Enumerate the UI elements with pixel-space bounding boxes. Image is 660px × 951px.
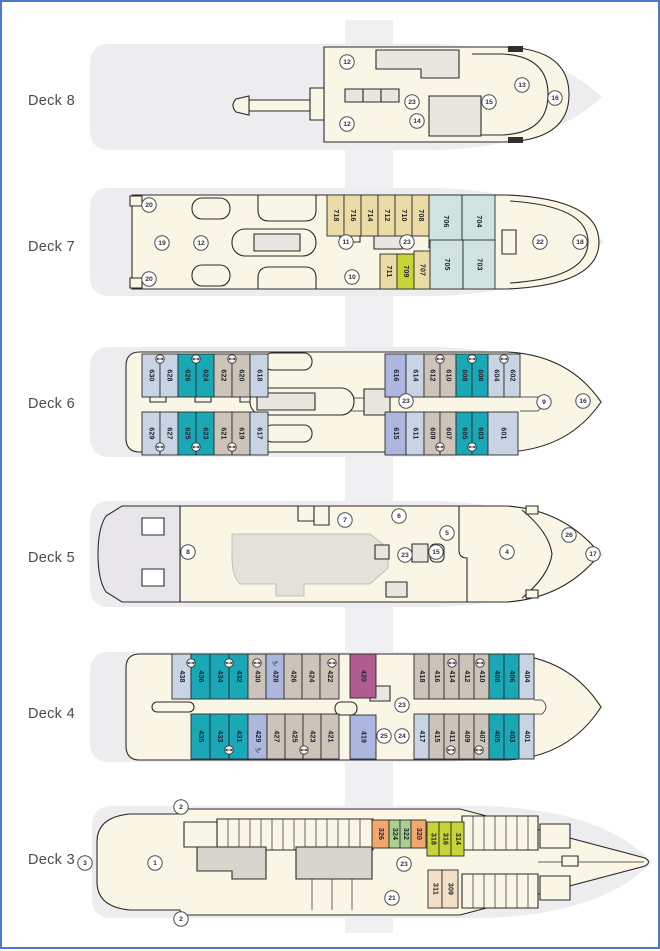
funnel-casing (192, 198, 230, 219)
deckhouse-room (264, 353, 312, 370)
cabin-number: 404 (523, 670, 530, 682)
cabin-number: 427 (273, 730, 280, 742)
connecting-cabins-icon (468, 355, 476, 363)
legend-marker-16: 16 (548, 91, 562, 105)
legend-marker-14: 14 (410, 114, 424, 128)
connecting-cabins-icon (448, 659, 456, 667)
legend-marker-number: 23 (408, 99, 416, 106)
deck3-plan: 32632432232031831631431130932123212 (78, 800, 652, 926)
connecting-cabins-icon (475, 746, 483, 754)
bow-pedestal (502, 230, 516, 254)
cabin-number: 620 (238, 369, 245, 381)
connecting-cabins-icon (436, 355, 444, 363)
legend-marker-number: 4 (505, 549, 509, 556)
legend-marker-number: 22 (536, 239, 544, 246)
cabin-number: 431 (235, 730, 242, 742)
cabin-number: 311 (432, 883, 439, 895)
legend-marker-number: 21 (388, 895, 396, 902)
locker (381, 89, 399, 102)
legend-marker-6: 6 (392, 509, 406, 523)
connecting-cabins-icon (300, 746, 308, 754)
connecting-cabins-icon (228, 355, 236, 363)
deck8-plan: 12122314151316 (90, 44, 602, 150)
lobby-desk (335, 702, 357, 715)
deck4-plan: 4384364344324304284264244224204184164144… (90, 652, 604, 762)
cabin-number: 425 (291, 730, 298, 742)
connecting-cabins-icon (192, 443, 200, 451)
cabin-number: 320 (415, 828, 422, 840)
cabin-number: 623 (202, 427, 209, 439)
legend-marker-number: 23 (401, 552, 409, 559)
legend-marker-number: 2 (179, 916, 183, 923)
legend-marker-19: 19 (155, 236, 169, 250)
connecting-cabins-icon (436, 443, 444, 451)
legend-marker-number: 16 (579, 398, 587, 405)
deck5-plan: 8765231542617 (90, 501, 604, 607)
legend-marker-number: 23 (398, 702, 406, 709)
cabin-number: 605 (461, 427, 468, 439)
legend-marker-2: 2 (174, 912, 188, 926)
legend-marker-number: 25 (380, 733, 388, 740)
cabin-number: 429 (254, 730, 261, 742)
tender-recess (258, 195, 316, 221)
funnel-casing-band (345, 20, 393, 933)
deckhouse-room (264, 425, 312, 442)
cabin-number: 403 (508, 730, 515, 742)
cabin-number: 432 (235, 670, 242, 682)
cabin-number: 619 (238, 427, 245, 439)
legend-marker-26: 26 (562, 528, 576, 542)
cabin-number: 625 (184, 427, 191, 439)
cabin-number: 718 (332, 209, 339, 221)
legend-marker-number: 7 (343, 517, 347, 524)
cabin-number: 708 (417, 209, 424, 221)
legend-marker-12: 12 (194, 236, 208, 250)
stern-platform (98, 506, 180, 602)
connecting-cabins-icon (225, 746, 233, 754)
legend-marker-23: 23 (398, 548, 412, 562)
service-room (314, 506, 329, 525)
crew-room (184, 822, 217, 847)
cabin-number: 714 (366, 209, 373, 221)
cabin-number: 435 (197, 730, 204, 742)
stair-core (412, 544, 428, 562)
cabin-number: 705 (443, 258, 450, 270)
legend-marker-number: 20 (145, 276, 153, 283)
cabin-number: 703 (476, 258, 483, 270)
legend-marker-12: 12 (340, 55, 354, 69)
cabin-number: 412 (463, 670, 470, 682)
cabin-number: 414 (448, 670, 455, 682)
connecting-cabins-icon (500, 355, 508, 363)
hull-marking (508, 137, 523, 143)
cabin-number: 417 (418, 730, 425, 742)
legend-marker-number: 10 (348, 274, 356, 281)
legend-marker-7: 7 (338, 513, 352, 527)
mast-tip (233, 96, 249, 115)
legend-marker-15: 15 (482, 95, 496, 109)
legend-marker-18: 18 (573, 235, 587, 249)
deck7-plan: 7187167147127107087067047117097077057032… (90, 188, 604, 296)
hull-marking (508, 46, 523, 52)
legend-marker-11: 11 (339, 235, 353, 249)
legend-marker-22: 22 (533, 235, 547, 249)
connecting-cabins-icon (468, 443, 476, 451)
legend-marker-23: 23 (405, 95, 419, 109)
legend-marker-number: 15 (485, 99, 493, 106)
legend-marker-15: 15 (429, 545, 443, 559)
cabin-number: 326 (377, 828, 384, 840)
cabin-number: 603 (477, 427, 484, 439)
cabin-number: 606 (477, 369, 484, 381)
cabin-number: 314 (454, 833, 461, 845)
cabin-number: 424 (308, 670, 315, 682)
cabin-number: 438 (178, 670, 185, 682)
bow-room (540, 876, 570, 900)
cabin-number: 627 (166, 427, 173, 439)
legend-marker-4: 4 (500, 545, 514, 559)
legend-marker-20: 20 (142, 272, 156, 286)
deckhouse-room (429, 96, 481, 136)
legend-marker-number: 16 (551, 95, 559, 102)
cabin-number: 630 (148, 369, 155, 381)
connecting-cabins-icon (476, 659, 484, 667)
cabin-number: 423 (309, 730, 316, 742)
legend-marker-number: 9 (542, 399, 546, 406)
legend-marker-23: 23 (397, 857, 411, 871)
cabin-number: 420 (360, 670, 367, 682)
cabin-number: 416 (433, 670, 440, 682)
legend-marker-number: 23 (400, 861, 408, 868)
legend-marker-9: 9 (537, 395, 551, 409)
cabin-number: 405 (493, 730, 500, 742)
legend-marker-number: 12 (197, 240, 205, 247)
legend-marker-8: 8 (181, 545, 195, 559)
crew-cabin-band (462, 816, 538, 850)
legend-marker-number: 24 (398, 733, 406, 740)
mast-arm (249, 100, 310, 111)
funnel-casing (192, 265, 230, 286)
deck-3-label: Deck 3 (28, 852, 75, 868)
cabin-number: 419 (360, 731, 367, 743)
cabin-number: 407 (478, 730, 485, 742)
legend-marker-number: 12 (343, 121, 351, 128)
cabin-number: 624 (202, 369, 209, 381)
legend-marker-number: 3 (83, 860, 87, 867)
cabin-number: 621 (220, 427, 227, 439)
cabin-number: 410 (478, 670, 485, 682)
deck-6-label: Deck 6 (28, 396, 75, 412)
bow-room (540, 824, 570, 848)
service-room (375, 545, 389, 559)
deck-5-label: Deck 5 (28, 550, 75, 566)
connecting-cabins-icon (187, 659, 195, 667)
legend-marker-number: 8 (186, 549, 190, 556)
deck-4-label: Deck 4 (28, 706, 75, 722)
stern-notch (142, 518, 164, 535)
cabin-number: 710 (400, 209, 407, 221)
cabin-number: 434 (216, 670, 223, 682)
legend-marker-number: 1 (153, 860, 157, 867)
connecting-cabins-icon (192, 355, 200, 363)
cabin-number: 709 (402, 265, 409, 277)
cabin-number: 704 (475, 215, 482, 227)
corridor-stub (152, 702, 194, 712)
legend-marker-number: 11 (342, 239, 349, 246)
legend-marker-10: 10 (345, 270, 359, 284)
deck-8-label: Deck 8 (28, 93, 75, 109)
legend-marker-number: 18 (576, 239, 584, 246)
cabin-number: 411 (448, 731, 455, 743)
cabin-number: 322 (402, 828, 409, 840)
cabin-number: 409 (463, 730, 470, 742)
cabin-number: 629 (148, 427, 155, 439)
cabin-number: 615 (392, 427, 399, 439)
legend-marker-24: 24 (395, 729, 409, 743)
legend-marker-21: 21 (385, 891, 399, 905)
stern-notch (142, 569, 164, 586)
cabin-number: 433 (216, 730, 223, 742)
cabin-number: 609 (429, 427, 436, 439)
cabin-number: 608 (461, 369, 468, 381)
deck-plan-page: { "page": {"border_color": "#4e79cb", "b… (0, 0, 660, 949)
hull-step (526, 590, 538, 598)
cabin-number: 707 (419, 264, 426, 276)
cabin-number: 318 (430, 833, 437, 845)
cabin-number: 430 (254, 670, 261, 682)
legend-marker-number: 15 (432, 549, 440, 556)
cabin-number: 428 (272, 670, 279, 682)
cabin-number: 309 (447, 883, 454, 895)
cabin-number: 716 (349, 209, 356, 221)
cabin-number: 622 (220, 369, 227, 381)
legend-marker-1: 1 (148, 856, 162, 870)
legend-marker-number: 14 (413, 118, 421, 125)
cabin-number: 712 (383, 209, 390, 221)
connecting-cabins-icon (156, 443, 164, 451)
hull-step (526, 506, 538, 514)
legend-marker-23: 23 (395, 698, 409, 712)
cabin-number: 616 (392, 369, 399, 381)
legend-marker-number: 26 (565, 532, 573, 539)
legend-marker-3: 3 (78, 856, 92, 870)
deck-plan-canvas: 1212231415131671871671471271070870670471… (2, 2, 660, 951)
cabin-number: 436 (197, 670, 204, 682)
cabin-number: 612 (429, 369, 436, 381)
legend-marker-number: 19 (158, 240, 166, 247)
connecting-cabins-icon (228, 443, 236, 451)
deck-7-label: Deck 7 (28, 239, 75, 255)
legend-marker-20: 20 (142, 198, 156, 212)
bow-locker (562, 856, 578, 866)
stern-notch (130, 278, 142, 288)
cabin-number: 628 (166, 369, 173, 381)
legend-marker-number: 6 (397, 513, 401, 520)
locker (363, 89, 381, 102)
connecting-cabins-icon (253, 659, 261, 667)
cabin-number: 316 (442, 833, 449, 845)
tender-recess (258, 267, 316, 289)
cabin-number: 421 (327, 730, 334, 742)
cabin-number: 711 (385, 266, 392, 278)
legend-marker-number: 5 (445, 530, 449, 537)
cabin-number: 611 (412, 428, 419, 440)
legend-marker-number: 17 (589, 551, 597, 558)
cabin-number: 422 (326, 670, 333, 682)
cabin-number: 324 (391, 828, 398, 840)
cabin-number: 415 (433, 730, 440, 742)
cabin-number: 401 (523, 730, 530, 742)
cabin-number: 426 (290, 670, 297, 682)
legend-marker-23: 23 (400, 235, 414, 249)
cabin-number: 601 (500, 427, 507, 439)
machinery-space (296, 847, 372, 879)
connecting-cabins-icon (156, 355, 164, 363)
legend-marker-25: 25 (377, 729, 391, 743)
crew-cabin-band (217, 819, 373, 850)
skylight (254, 234, 300, 251)
crew-cabin-band (462, 874, 538, 908)
cabin-number: 626 (184, 369, 191, 381)
legend-marker-2: 2 (174, 800, 188, 814)
legend-marker-12: 12 (340, 117, 354, 131)
legend-marker-17: 17 (586, 547, 600, 561)
cabin-number: 618 (256, 369, 263, 381)
cabin-number: 406 (508, 670, 515, 682)
legend-marker-number: 23 (402, 398, 410, 405)
mast-base (310, 88, 324, 120)
connecting-cabins-icon (225, 659, 233, 667)
service-room (386, 582, 407, 597)
cabin-number: 607 (445, 427, 452, 439)
legend-marker-number: 20 (145, 202, 153, 209)
cabin-number: 614 (412, 369, 419, 381)
connecting-cabins-icon (447, 746, 455, 754)
service-room (298, 506, 314, 521)
cabin-number: 706 (442, 215, 449, 227)
deck6-plan: 6306286266246226206186166146126106086066… (90, 347, 604, 457)
legend-marker-number: 12 (343, 59, 351, 66)
cabin-number: 604 (493, 369, 500, 381)
legend-marker-5: 5 (440, 526, 454, 540)
connecting-cabins-icon (328, 659, 336, 667)
cabin-number: 602 (509, 369, 516, 381)
legend-marker-number: 13 (518, 82, 526, 89)
legend-marker-16: 16 (576, 394, 590, 408)
cabin-number: 408 (493, 670, 500, 682)
cabin-number: 617 (256, 427, 263, 439)
stern-notch (130, 196, 142, 206)
locker (345, 89, 363, 102)
cabin-number: 418 (418, 670, 425, 682)
legend-marker-13: 13 (515, 78, 529, 92)
legend-marker-number: 23 (403, 239, 411, 246)
cabin-number: 610 (445, 369, 452, 381)
legend-marker-23: 23 (399, 394, 413, 408)
legend-marker-number: 2 (179, 804, 183, 811)
